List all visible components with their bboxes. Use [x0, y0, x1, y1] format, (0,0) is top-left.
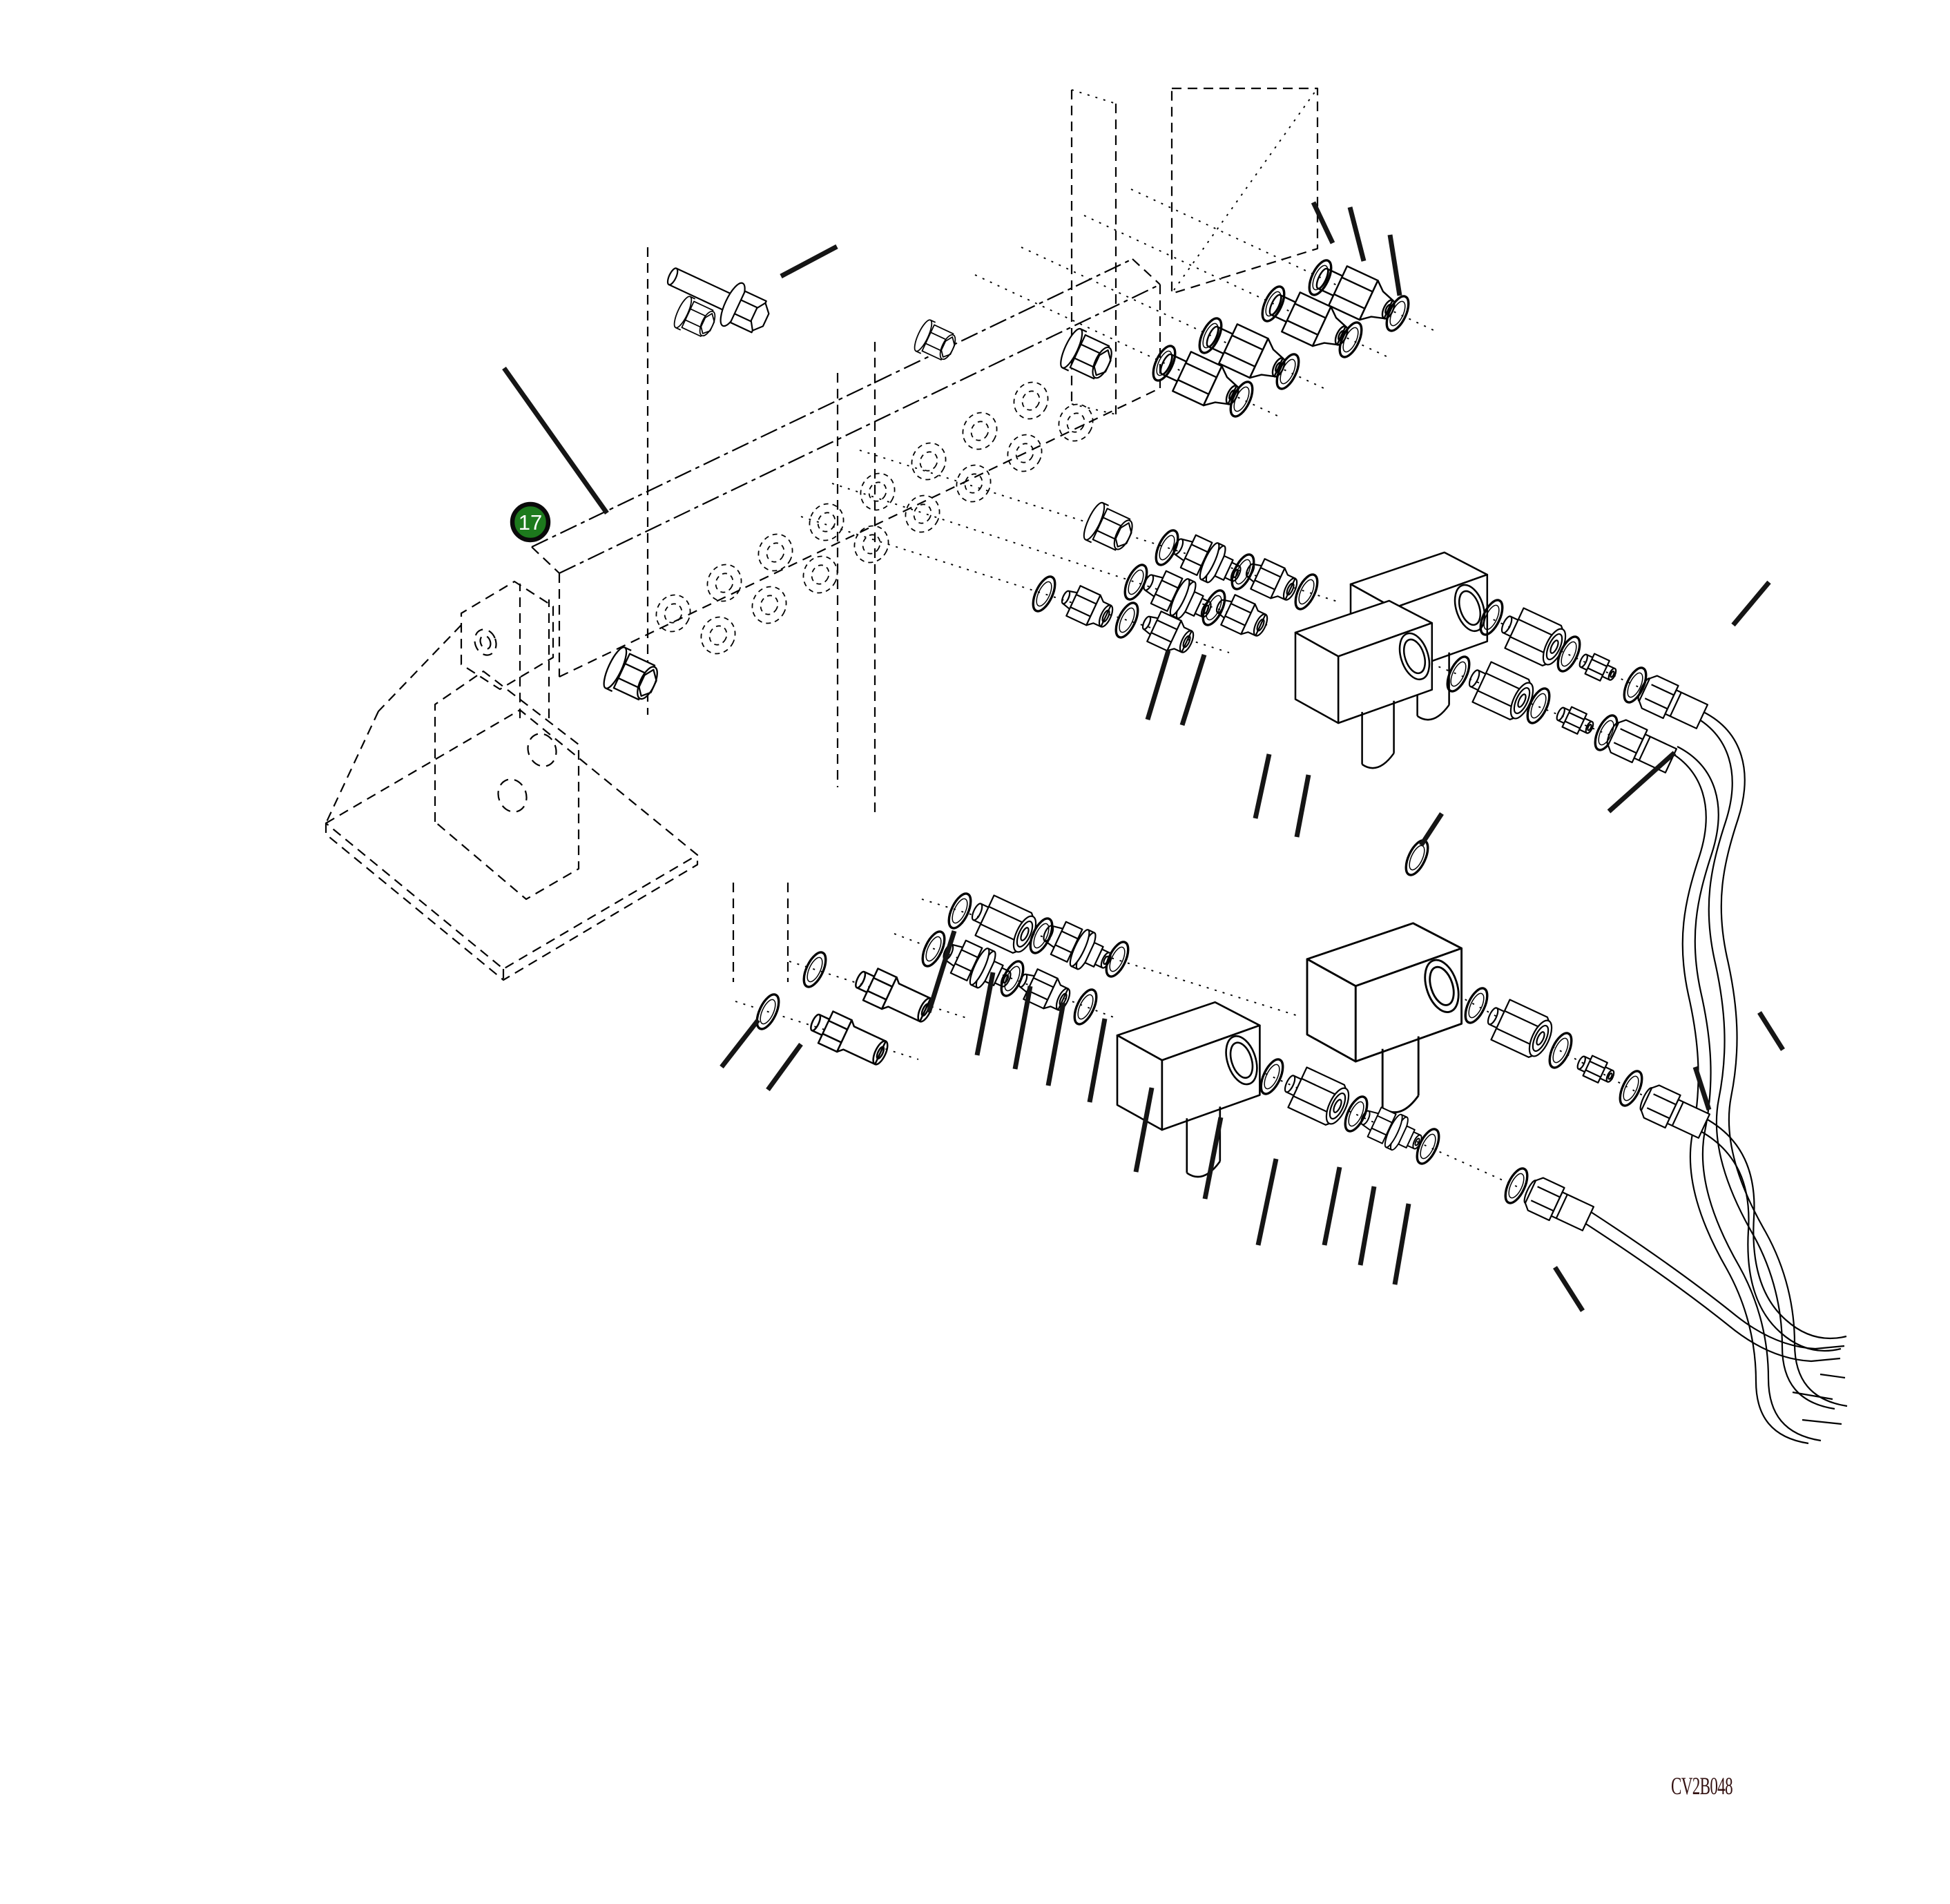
o-ring: [1257, 1056, 1288, 1097]
port-boss: [1053, 398, 1099, 446]
hose-line: [1703, 712, 1847, 1406]
leader-line: [768, 1044, 801, 1090]
hose-line: [1677, 747, 1821, 1441]
leader-line: [1313, 202, 1333, 243]
hose-line: [1665, 749, 1808, 1443]
hose-end-fitting: [1520, 1174, 1596, 1235]
leader-line: [1395, 1204, 1409, 1285]
o-ring: [1413, 1126, 1444, 1166]
leader-line: [1350, 207, 1364, 261]
leader-line: [1255, 754, 1269, 818]
leader-line: [1015, 986, 1030, 1069]
hose-line: [1589, 1211, 1844, 1349]
port-boss: [804, 498, 849, 546]
hose-line: [1691, 715, 1835, 1409]
manifold-top-rear-edge: [532, 259, 1132, 547]
middle-fitting-rows: [1029, 527, 1710, 878]
bracket-hole: [523, 730, 561, 771]
leader-line: [1759, 1012, 1783, 1050]
leader-line: [781, 247, 837, 276]
hex-plug: [911, 318, 960, 365]
leader-line: [1360, 1186, 1374, 1265]
hex-plug: [600, 645, 664, 706]
leader-line: [1258, 1159, 1276, 1245]
port-boss: [900, 490, 945, 537]
drawing-code-group: CV2B048: [1671, 1772, 1732, 1800]
hex-nipple: [1576, 650, 1619, 686]
leader-line: [1555, 1267, 1583, 1311]
port-boss: [798, 550, 843, 598]
bracket-base-edge: [326, 823, 697, 980]
cap-nut: [1277, 1062, 1354, 1129]
bracket-arm-hole-inner: [479, 634, 492, 651]
bracket-hole: [494, 776, 531, 816]
leader-line: [1390, 235, 1400, 296]
hose-end-fitting: [1603, 716, 1679, 777]
hose-lower-pair: [1585, 1118, 1846, 1424]
hex-plug: [1056, 326, 1117, 385]
manifold-top-front-edge: [559, 285, 1160, 573]
elbow-fitting: [1295, 601, 1435, 768]
leader-line: [1324, 1167, 1340, 1245]
barb-fitting: [805, 1006, 892, 1071]
drawing-code: CV2B048: [1671, 1772, 1732, 1800]
leader-line: [1182, 655, 1204, 725]
port-boss: [951, 459, 996, 507]
hose-upper-pair: [1665, 712, 1847, 1443]
port-boss: [753, 528, 798, 576]
parts-diagram-page: 17 CV2B048: [0, 0, 1950, 1904]
phantom-panel-diagonal: [1174, 91, 1315, 290]
o-ring: [1291, 571, 1322, 612]
leader-line: [1090, 1019, 1105, 1102]
o-ring: [1152, 527, 1183, 568]
bracket-base-plate: [326, 710, 697, 969]
leader-line: [1297, 775, 1309, 837]
barb-fitting: [850, 963, 937, 1028]
hex-plug: [671, 294, 720, 341]
port-boss: [1008, 376, 1054, 424]
swivel-fitting: [1056, 581, 1117, 633]
bracket-arm: [461, 581, 553, 689]
o-ring: [1102, 939, 1133, 979]
cap-nut: [1494, 603, 1571, 670]
leader-line: [1205, 1117, 1221, 1199]
callout-number: 17: [519, 510, 542, 535]
hose-line: [1585, 1223, 1840, 1361]
bracket-arm-hole: [471, 626, 499, 658]
hose-tail-lines: [1793, 1374, 1845, 1424]
hex-plug: [1080, 500, 1137, 556]
port-boss: [650, 589, 696, 637]
exploded-diagram-canvas: 17 CV2B048: [0, 0, 1950, 1904]
phantom-box: [733, 883, 788, 982]
bracket-column: [520, 584, 549, 718]
leader-line: [1148, 651, 1168, 720]
leader-line: [1421, 814, 1442, 845]
leader-lines: [504, 202, 1783, 1311]
o-ring: [1461, 985, 1492, 1026]
o-ring: [1443, 653, 1474, 694]
leader-line: [1733, 582, 1769, 625]
manifold-block-phantom: [532, 88, 1317, 982]
o-ring: [1112, 599, 1143, 640]
part-callout[interactable]: 17: [512, 504, 548, 540]
port-boss: [855, 468, 900, 515]
leader-line: [929, 931, 954, 1012]
hex-nipple: [1554, 703, 1596, 739]
port-boss: [702, 559, 747, 606]
cap-nut: [1480, 994, 1557, 1061]
bracket-gusset: [326, 625, 461, 823]
o-ring: [945, 890, 976, 931]
mounting-bracket-phantom: [326, 581, 697, 980]
port-boss: [906, 437, 952, 485]
leader-line: [722, 1020, 758, 1067]
leader-line: [1048, 1003, 1063, 1086]
barb-fitting-pair: [753, 949, 938, 1070]
port-boss: [957, 407, 1003, 454]
lower-fitting-rows: [918, 890, 1712, 1235]
leader-line: [504, 368, 607, 513]
o-ring: [1070, 986, 1101, 1027]
port-boss: [746, 581, 792, 628]
hose-end-fitting: [1634, 672, 1710, 733]
manifold-body-edges: [532, 259, 1160, 677]
hydraulic-hoses: [1585, 712, 1847, 1443]
o-ring: [1402, 837, 1433, 878]
port-boss: [695, 611, 741, 659]
bracket-plate: [435, 671, 579, 899]
o-ring: [1121, 561, 1152, 602]
o-ring: [1029, 573, 1060, 614]
top-fitting-row: [1149, 257, 1413, 419]
hex-nipple: [1574, 1052, 1617, 1088]
port-boss: [849, 520, 894, 568]
